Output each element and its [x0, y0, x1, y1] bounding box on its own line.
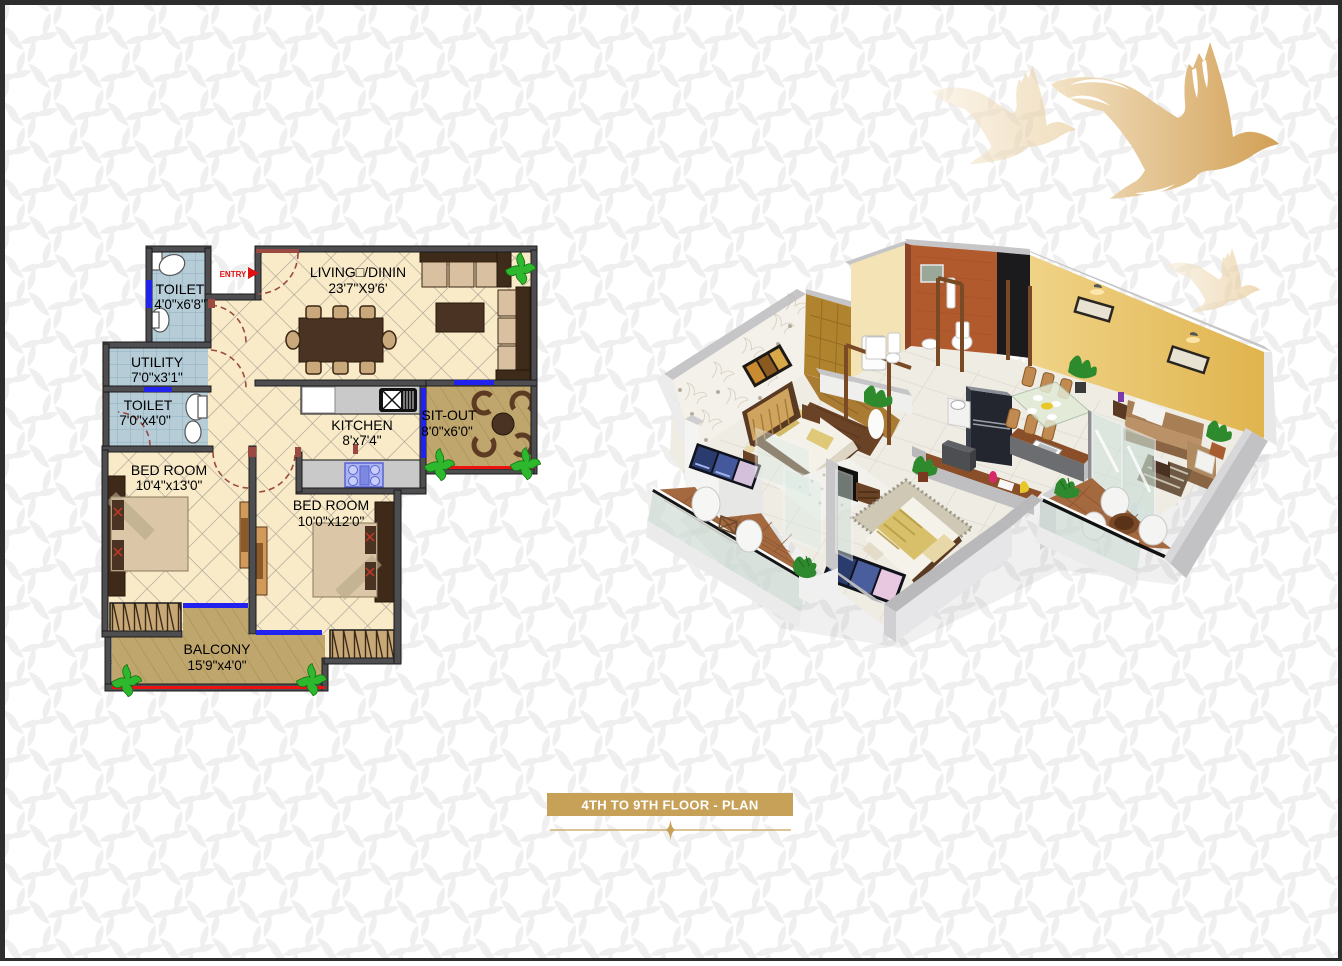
svg-text:TOILET: TOILET — [156, 281, 205, 297]
svg-text:SIT-OUT: SIT-OUT — [421, 407, 477, 423]
svg-text:LIVING□/DININ: LIVING□/DININ — [310, 264, 406, 280]
svg-text:10'0"x12'0": 10'0"x12'0" — [298, 514, 365, 529]
svg-text:15'9"x4'0": 15'9"x4'0" — [187, 658, 246, 673]
svg-text:BED ROOM: BED ROOM — [293, 497, 369, 513]
svg-text:4TH TO 9TH FLOOR - PLAN: 4TH TO 9TH FLOOR - PLAN — [581, 798, 758, 813]
svg-text:8'x7'4": 8'x7'4" — [342, 433, 381, 448]
svg-text:10'4"x13'0": 10'4"x13'0" — [136, 478, 203, 493]
svg-text:KITCHEN: KITCHEN — [331, 417, 392, 433]
svg-text:4'0"x6'8": 4'0"x6'8" — [154, 297, 206, 312]
svg-text:23'7"X9'6': 23'7"X9'6' — [328, 281, 387, 296]
svg-text:BED ROOM: BED ROOM — [131, 462, 207, 478]
svg-text:TOILET: TOILET — [124, 397, 173, 413]
svg-text:UTILITY: UTILITY — [131, 354, 184, 370]
svg-text:8'0"x6'0": 8'0"x6'0" — [421, 424, 473, 439]
svg-text:7'0"x3'1": 7'0"x3'1" — [131, 370, 183, 385]
svg-text:BALCONY: BALCONY — [184, 641, 252, 657]
svg-text:ENTRY: ENTRY — [220, 270, 247, 279]
svg-text:7'0"x4'0": 7'0"x4'0" — [119, 413, 171, 428]
